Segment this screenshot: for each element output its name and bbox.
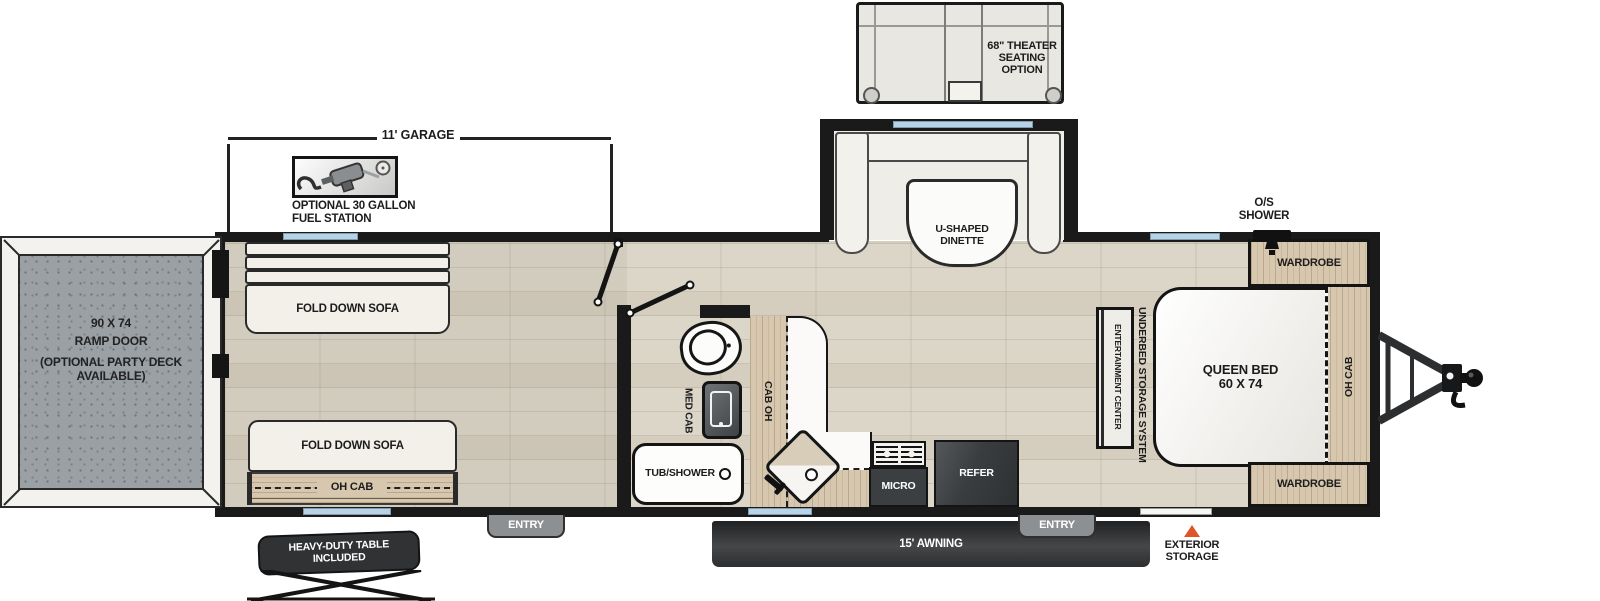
entry-main-label: ENTRY	[1039, 519, 1075, 531]
fuel-station-label-line2: FUEL STATION	[292, 213, 426, 226]
shower-head-spout	[1265, 241, 1279, 249]
bathroom-sink-icon	[702, 381, 742, 439]
console-tray	[948, 81, 982, 102]
sofa-top-slat-2	[245, 256, 450, 270]
toilet-bowl	[687, 327, 730, 368]
table-legs-icon	[243, 570, 438, 601]
tub-shower-label: TUB/SHOWER	[645, 468, 715, 480]
window-bottom-garage	[303, 508, 391, 515]
queen-bed-label-line2: 60 X 74	[1203, 377, 1279, 391]
fold-down-sofa-top-label: FOLD DOWN SOFA	[296, 303, 399, 316]
shower-head-icon	[1253, 230, 1291, 241]
fold-down-sofa-bottom-label: FOLD DOWN SOFA	[301, 440, 404, 453]
bathroom-wall-left	[617, 305, 631, 507]
fuel-station-label: OPTIONAL 30 GALLON FUEL STATION	[292, 200, 426, 225]
bedroom-oh-cab-label: OH CAB	[1339, 327, 1361, 427]
dinette-label: U-SHAPED DINETTE	[920, 224, 1004, 247]
fold-down-sofa-bottom: FOLD DOWN SOFA	[248, 420, 457, 472]
entry-garage-label: ENTRY	[508, 519, 544, 531]
sofa-top-slat-3	[245, 270, 450, 284]
tub-shower: TUB/SHOWER	[632, 443, 744, 505]
exterior-storage-line2: STORAGE	[1147, 551, 1237, 563]
slide-window-top	[893, 121, 1033, 128]
queen-bed: QUEEN BED 60 X 74	[1153, 287, 1328, 467]
os-shower-label-line1: O/S	[1222, 197, 1306, 210]
hitch-icon	[1378, 318, 1493, 440]
kitchen-counter-top	[788, 316, 828, 434]
slide-wall-left	[820, 119, 834, 240]
oh-cab-post-right	[453, 472, 458, 505]
sink-drain	[719, 422, 723, 426]
kitchen-cab-oh-label: CAB OH	[756, 346, 778, 456]
os-shower-label: O/S SHOWER	[1222, 197, 1306, 222]
toilet-drain	[727, 343, 732, 348]
underbed-storage-label: UNDERBED STORAGE SYSTEM	[1130, 290, 1152, 480]
oh-cab-inner-line	[252, 498, 453, 499]
garage-oh-cab: OH CAB	[247, 472, 458, 505]
sofa-top-slat-1	[245, 242, 450, 256]
ramp-frame-miters	[2, 238, 224, 510]
microwave: MICRO	[869, 467, 928, 507]
shower-head-nozzle	[1269, 250, 1275, 255]
bedroom-oh-cab: OH CAB	[1330, 287, 1370, 467]
garage-dim-tick-right	[610, 144, 613, 232]
dinette-slideout: U-SHAPED DINETTE	[818, 119, 1078, 269]
fold-down-sofa-top: FOLD DOWN SOFA	[245, 284, 450, 334]
seat-foot-left	[863, 87, 880, 104]
refrigerator: REFER	[934, 440, 1019, 507]
ramp-hinge-top	[212, 250, 229, 298]
console-left-line	[944, 5, 946, 101]
queen-bed-label-line1: QUEEN BED	[1203, 363, 1279, 377]
garage-dim-line-right	[460, 137, 611, 140]
garage-oh-cab-label: OH CAB	[317, 481, 387, 493]
door-swing-icon	[560, 232, 760, 332]
exterior-storage-line1: EXTERIOR	[1147, 539, 1237, 551]
garage-dim-tick-left	[227, 144, 230, 232]
dinette-table: U-SHAPED DINETTE	[906, 179, 1018, 267]
os-shower-label-line2: SHOWER	[1222, 210, 1306, 223]
ramp-hinge-bottom	[212, 354, 229, 378]
fuel-nozzle-icon	[295, 159, 395, 195]
dinette-bench-left	[835, 132, 869, 254]
med-cab-label: MED CAB	[678, 378, 698, 444]
fuel-station-image	[292, 156, 398, 198]
wardrobe-bottom: WARDROBE	[1248, 462, 1370, 507]
oh-cab-post-left	[247, 472, 252, 505]
heavy-duty-table: HEAVY-DUTY TABLE INCLUDED	[257, 530, 420, 576]
awning-label: 15' AWNING	[899, 538, 963, 551]
window-bottom-kitchen	[748, 508, 812, 515]
tub-drain	[719, 468, 731, 480]
garage-dim-line-left	[228, 137, 377, 140]
window-bottom-bedroom	[1140, 508, 1212, 515]
entry-tag-garage: ENTRY	[487, 515, 565, 538]
entertainment-center-label: ENTERTAINMENT CENTER	[1105, 312, 1129, 442]
rv-floorplan: 68" THEATER SEATING OPTION 11' GARAGE OP…	[0, 0, 1600, 601]
exterior-storage-label: EXTERIOR STORAGE	[1147, 539, 1237, 563]
dinette-bench-right	[1027, 132, 1061, 254]
window-top-bedroom	[1150, 233, 1220, 240]
ramp-door: 90 X 74 RAMP DOOR (OPTIONAL PARTY DECK A…	[0, 236, 222, 508]
window-top-garage	[283, 233, 358, 240]
refrigerator-label: REFER	[959, 468, 994, 480]
stove-icon	[872, 441, 926, 467]
kitchen-sink-drain	[802, 466, 820, 484]
wardrobe-top-label: WARDROBE	[1277, 257, 1341, 269]
theater-seating-label: 68" THEATER SEATING OPTION	[981, 23, 1063, 93]
trailer-body: FOLD DOWN SOFA FOLD DOWN SOFA OH CAB MED…	[215, 232, 1380, 517]
microwave-label: MICRO	[882, 481, 916, 493]
stove-burner-right	[901, 445, 923, 463]
entertainment-center: ENTERTAINMENT CENTER	[1096, 307, 1134, 449]
fuel-station-label-line1: OPTIONAL 30 GALLON	[292, 200, 426, 213]
stove-burner-left	[876, 445, 898, 463]
wardrobe-bottom-label: WARDROBE	[1277, 478, 1341, 490]
entertainment-center-shelf	[1101, 310, 1104, 446]
theater-seating-option: 68" THEATER SEATING OPTION	[856, 2, 1064, 104]
garage-dimension-label: 11' GARAGE	[377, 129, 459, 143]
entry-tag-main: ENTRY	[1018, 515, 1096, 538]
slide-wall-right	[1064, 119, 1078, 240]
exterior-storage-marker	[1184, 525, 1200, 537]
